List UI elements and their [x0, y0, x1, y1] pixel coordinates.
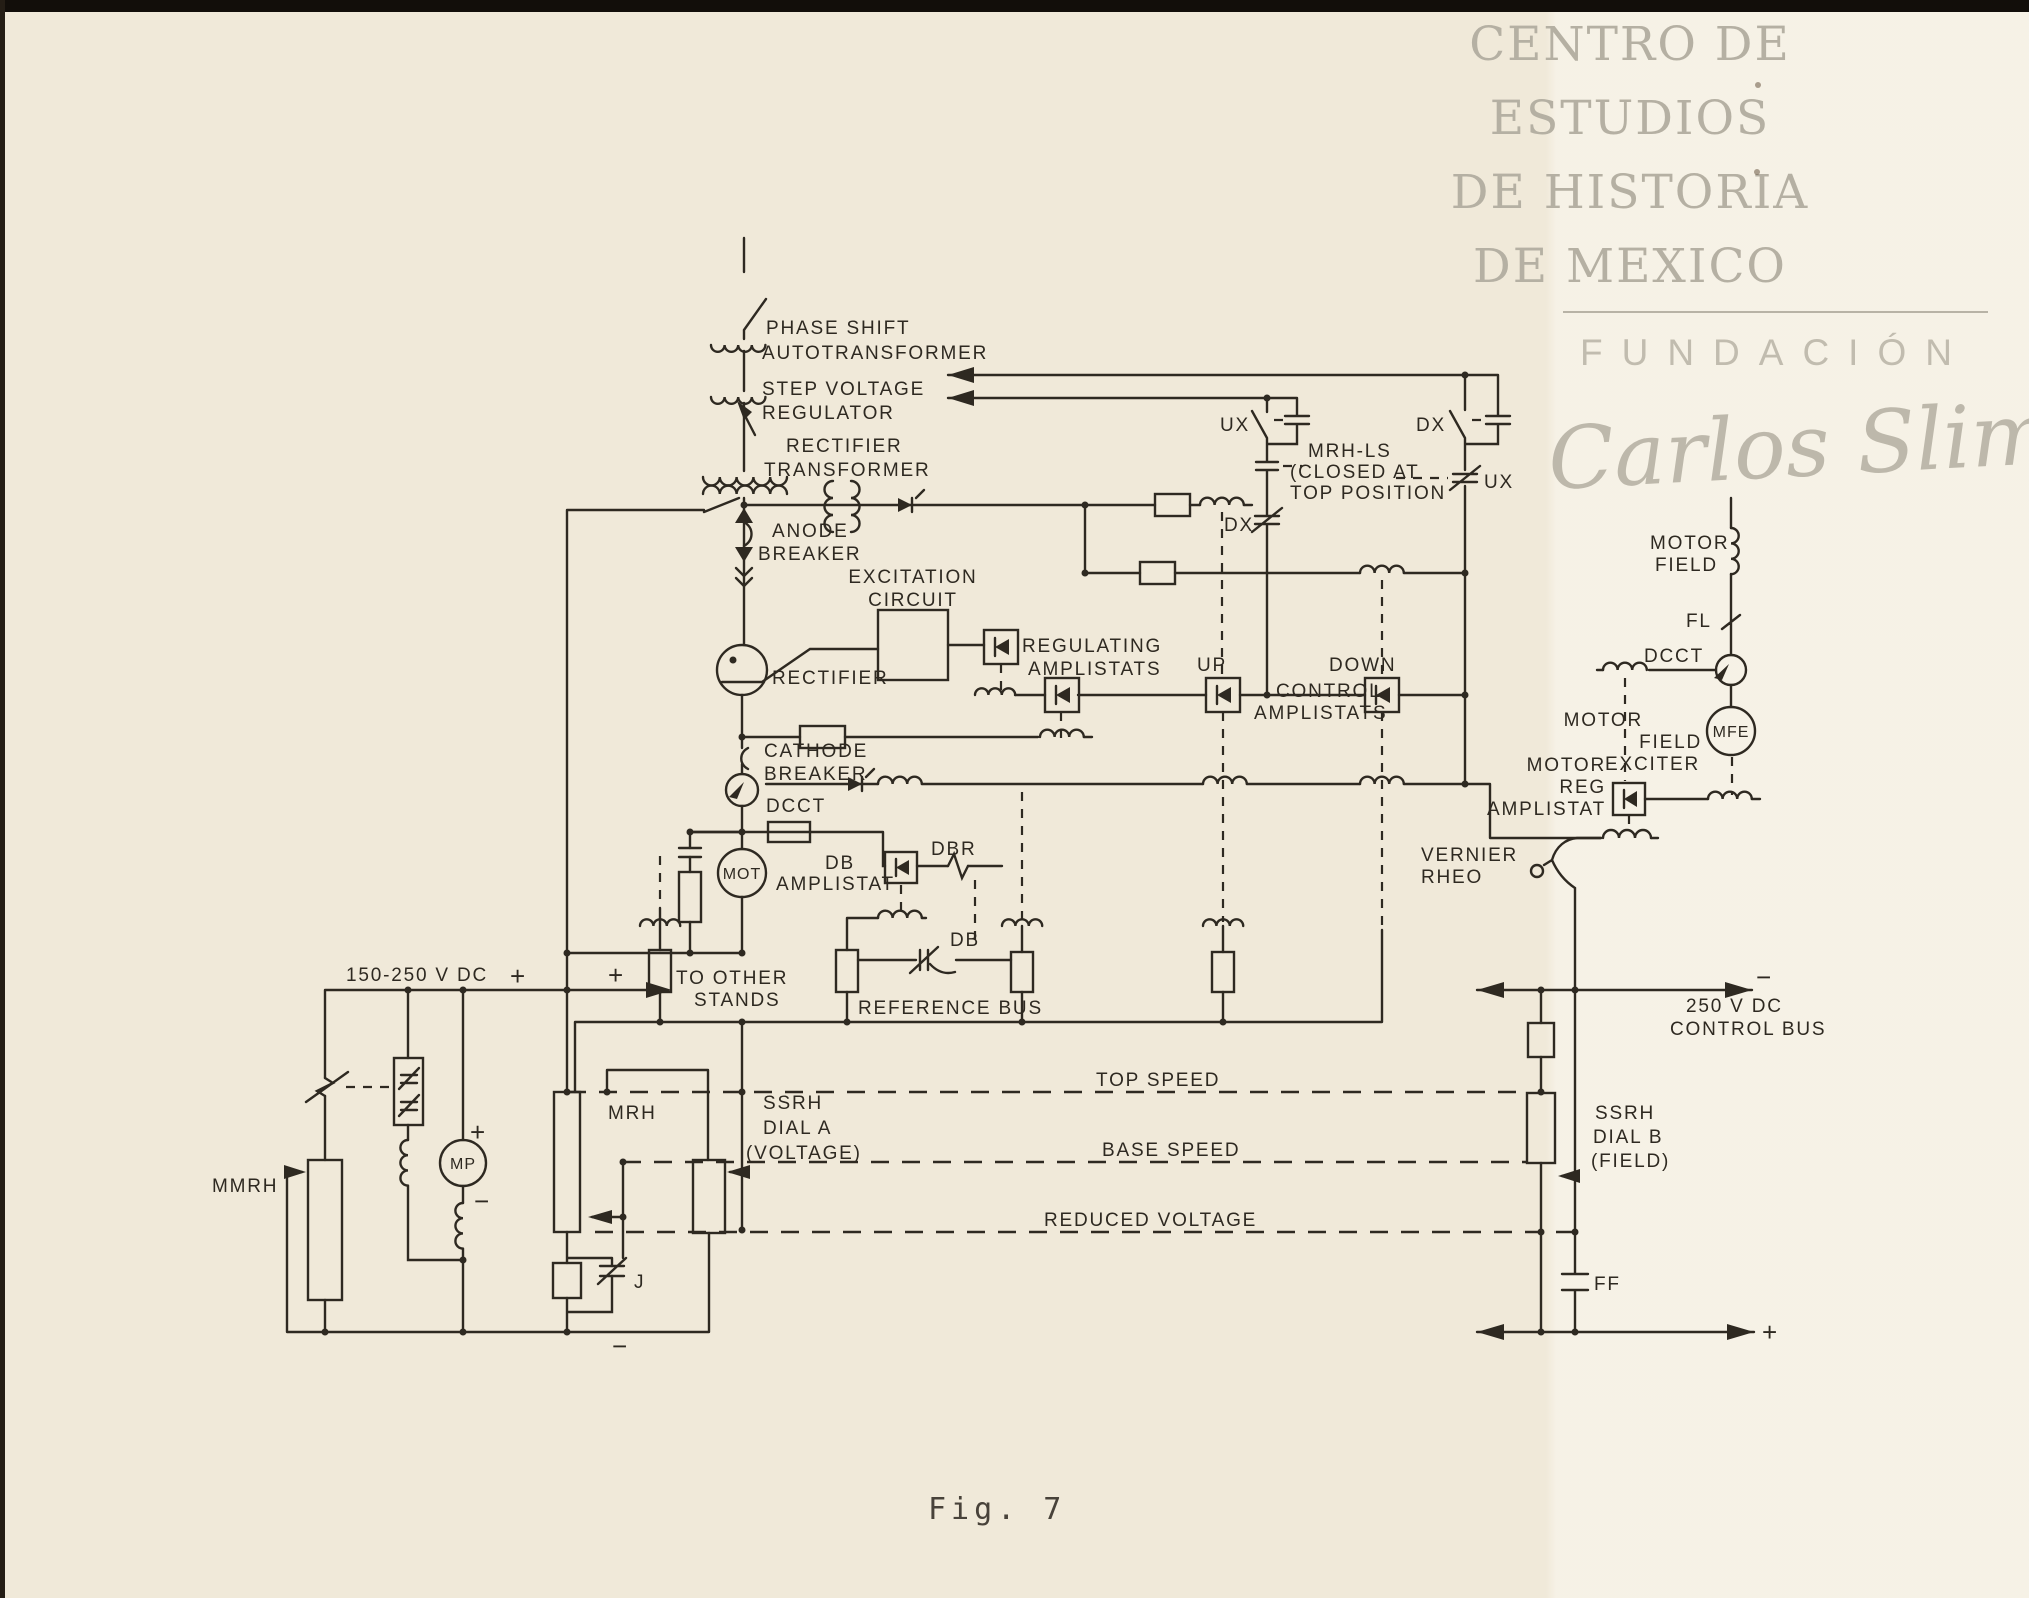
inductor-row505	[1200, 498, 1244, 505]
motor-field-exciter-label-2: FIELD	[1639, 732, 1702, 753]
dcct-left-label: DCCT	[766, 796, 826, 817]
control-bus-label-2: CONTROL BUS	[1670, 1019, 1826, 1040]
motor-field-coil	[1731, 528, 1739, 574]
bottom-plus: +	[1762, 1317, 1777, 1347]
vernier-rheo-terminal	[1531, 865, 1543, 877]
bottom-minus: −	[612, 1331, 627, 1361]
mfe-field-inductor	[1708, 792, 1752, 799]
resistor	[1212, 952, 1234, 992]
resistor	[1140, 562, 1175, 584]
circuit-diagram: PHASE SHIFT AUTOTRANSFORMER STEP VOLTAGE…	[0, 0, 2029, 1598]
rectifier-cathode-dot	[730, 657, 737, 664]
inductor-row784-b	[1203, 777, 1247, 784]
dx-left-label: DX	[1224, 515, 1254, 536]
junction-dot	[1082, 570, 1089, 577]
excitation-circuit-box	[878, 610, 948, 680]
arrowheads-and-diodes	[284, 367, 1754, 1340]
to-other-stands-label-2: STANDS	[694, 990, 780, 1011]
j-box	[553, 1263, 581, 1298]
dcct-right-inductor	[1603, 663, 1647, 670]
junction-dot	[564, 950, 571, 957]
down-label: DOWN	[1329, 655, 1396, 676]
motor-reg-amplistat-label-3: AMPLISTAT	[1487, 799, 1606, 820]
phase-shift-autotransformer-coil	[711, 345, 765, 352]
step-voltage-label-2: REGULATOR	[762, 403, 895, 424]
junction-dot	[564, 987, 571, 994]
inductor-row573	[1360, 566, 1404, 573]
contacts	[317, 848, 968, 1284]
motor-reg-amplistat-label-1: MOTOR	[1527, 755, 1606, 776]
excitation-label-1: EXCITATION	[848, 567, 977, 588]
junction-dot	[460, 1257, 467, 1264]
phase-shift-label-2: AUTOTRANSFORMER	[762, 343, 988, 364]
motor-field-label-2: FIELD	[1655, 555, 1718, 576]
junction-dot	[1462, 781, 1469, 788]
junction-dot	[739, 950, 746, 957]
junction-dot	[1572, 1329, 1579, 1336]
wire-layer	[287, 238, 1760, 1332]
up-amplistat	[1206, 678, 1240, 712]
junction-dot	[739, 829, 746, 836]
junction-dot	[460, 987, 467, 994]
inductor-row695	[975, 688, 1015, 695]
anode-breaker-label-1: ANODE	[772, 521, 849, 542]
resistor	[1011, 952, 1033, 992]
rectifier-transformer-secondary-coil	[703, 486, 787, 494]
regulating-amplistat-2	[1045, 678, 1079, 712]
dcct-right-circle	[1716, 655, 1746, 685]
db-amplistat-label-2: AMPLISTAT	[776, 874, 895, 895]
junction-dot	[844, 1019, 851, 1026]
junction-dot	[1538, 1329, 1545, 1336]
regulating-amplistats-label-2: AMPLISTATS	[1028, 659, 1161, 680]
motor-reg-amplistat-box	[1613, 783, 1645, 815]
junction-dot	[1082, 502, 1089, 509]
ssrh-a-label-2: DIAL A	[763, 1118, 832, 1139]
mmrh-resistor	[308, 1160, 342, 1300]
junction-dot	[687, 829, 694, 836]
mp-label: MP	[450, 1156, 476, 1173]
mp-series-coil	[455, 1203, 463, 1249]
scr-row505	[898, 490, 924, 512]
vernier-inductor	[1603, 830, 1651, 838]
control-bus-minus: −	[1756, 962, 1771, 992]
cathode-breaker-label-1: CATHODE	[764, 741, 868, 762]
dx-right-label: DX	[1416, 415, 1446, 436]
junction-dot	[657, 1019, 664, 1026]
ssrh-b-label-3: (FIELD)	[1591, 1151, 1670, 1172]
reduced-voltage-label: REDUCED VOLTAGE	[1044, 1210, 1257, 1231]
dust-speck	[1754, 169, 1760, 175]
junction-dot	[604, 1089, 611, 1096]
phase-shift-label-1: PHASE SHIFT	[766, 318, 910, 339]
junction-dot	[1572, 987, 1579, 994]
junction-dot	[1538, 1089, 1545, 1096]
ssrh-b-label-1: SSRH	[1595, 1103, 1655, 1124]
vernier-rheo-label-1: VERNIER	[1421, 845, 1518, 866]
diode-icon	[1056, 687, 1070, 703]
junction-dot	[1572, 1229, 1579, 1236]
rectifier-transformer-label-2: TRANSFORMER	[764, 460, 931, 481]
mmrh-label: MMRH	[212, 1176, 278, 1197]
junction-dot	[1462, 570, 1469, 577]
motor-field-exciter-label-1: MOTOR	[1564, 710, 1643, 731]
junction-dot	[1264, 395, 1271, 402]
under-mot-capacitor	[679, 848, 701, 857]
reference-bus-label: REFERENCE BUS	[858, 998, 1043, 1019]
resistor	[1155, 494, 1190, 516]
resistor	[679, 872, 701, 922]
ff-label: FF	[1594, 1274, 1621, 1295]
junction-dot	[1538, 987, 1545, 994]
junction-dot	[460, 1329, 467, 1336]
junction-dot	[739, 734, 746, 741]
junction-dot	[405, 987, 412, 994]
anode-breaker-label-2: BREAKER	[758, 544, 861, 565]
junction-dot	[620, 1214, 627, 1221]
up-label: UP	[1197, 655, 1227, 676]
regulating-amplistat-1	[984, 630, 1018, 664]
rectifier-label: RECTIFIER	[772, 668, 888, 689]
excitation-label-2: CIRCUIT	[868, 590, 958, 611]
field-loss-coil	[400, 1140, 408, 1186]
ssrh-a-label-1: SSRH	[763, 1093, 823, 1114]
inductor-row784-a	[878, 777, 922, 784]
motor-field-label-1: MOTOR	[1650, 533, 1729, 554]
junction-dot	[1538, 1229, 1545, 1236]
vernier-rheo-label-2: RHEO	[1421, 867, 1483, 888]
mot-label: MOT	[723, 866, 762, 883]
scr-gate	[916, 490, 924, 498]
junction-dot	[1019, 1019, 1026, 1026]
to-other-stands-label-1: TO OTHER	[676, 968, 788, 989]
dcct-right-label: DCCT	[1644, 646, 1704, 667]
junction-dot	[687, 950, 694, 957]
mrh-ls-label-3: TOP POSITION	[1290, 483, 1446, 504]
control-dashed-verticals	[346, 420, 1732, 1087]
ssrh-dial-a-resistor	[693, 1160, 725, 1233]
figure-caption: Fig. 7	[928, 1492, 1066, 1527]
mrh-ls-label-2: (CLOSED AT	[1290, 462, 1420, 483]
mrh-label: MRH	[608, 1103, 657, 1124]
scan-dust	[1754, 82, 1761, 175]
junction-dot	[741, 502, 748, 509]
field-loss-contact-icons	[399, 1068, 419, 1116]
step-voltage-label-1: STEP VOLTAGE	[762, 379, 925, 400]
cathode-breaker-label-2: BREAKER	[764, 764, 867, 785]
control-bus-label-1: 250 V DC	[1686, 996, 1783, 1017]
motor-field-exciter-label-3: EXCITER	[1605, 754, 1700, 775]
db-contact-label: DB	[950, 930, 980, 951]
top-speed-label: TOP SPEED	[1096, 1070, 1220, 1091]
dcct-left-arrow-icon	[729, 782, 744, 799]
junction-dot	[564, 1329, 571, 1336]
junction-dot	[564, 1089, 571, 1096]
junction-dot	[1264, 692, 1271, 699]
dbr-label: DBR	[931, 839, 977, 860]
junction-dot	[1220, 1019, 1227, 1026]
ssrh-dial-b-upper-resistor	[1528, 1023, 1554, 1057]
dc-bus-label: 150-250 V DC	[346, 965, 488, 986]
db-amplistat-label-1: DB	[825, 853, 855, 874]
ssrh-b-label-2: DIAL B	[1593, 1127, 1663, 1148]
fl-label: FL	[1686, 611, 1712, 632]
junction-dot	[322, 1329, 329, 1336]
rectifier-circle	[717, 645, 767, 695]
resistors-and-boxes	[308, 494, 1555, 1300]
diode-icon	[1624, 791, 1637, 807]
junction-dot	[1462, 692, 1469, 699]
base-speed-label: BASE SPEED	[1102, 1140, 1240, 1161]
j-label: J	[634, 1272, 645, 1293]
mp-minus: −	[474, 1186, 489, 1216]
junction-dot	[739, 1089, 746, 1096]
ux-right-label: UX	[1484, 472, 1514, 493]
mp-plus: +	[470, 1117, 485, 1147]
dust-speck	[1755, 82, 1761, 88]
diode-icon	[995, 639, 1009, 655]
rectifier-transformer-label-1: RECTIFIER	[786, 436, 902, 457]
inductor-row918	[878, 911, 922, 918]
ssrh-dial-b-resistor	[1527, 1093, 1555, 1163]
scr-triangle	[898, 498, 912, 512]
junction-dot	[739, 1019, 746, 1026]
junction-dot	[620, 1159, 627, 1166]
junction-dot	[1462, 372, 1469, 379]
right-side-wires	[948, 375, 1760, 1332]
regulating-amplistats-label-1: REGULATING	[1022, 636, 1162, 657]
control-amplistats-label-1: CONTROL	[1276, 681, 1382, 702]
control-amplistats-label-2: AMPLISTATS	[1254, 703, 1387, 724]
dcct-left-circle	[726, 774, 758, 806]
junction-dot	[739, 1227, 746, 1234]
ux-left-label: UX	[1220, 415, 1250, 436]
mmrh-break-symbol	[317, 1078, 333, 1096]
aux-transformer-right-winding	[851, 481, 860, 532]
motor-reg-amplistat-label-2: REG	[1559, 777, 1606, 798]
diode-icon	[1217, 687, 1231, 703]
mrh-ls-label-1: MRH-LS	[1308, 441, 1392, 462]
inductor-and-transformer-coils	[400, 345, 1751, 1249]
ssrh-a-label-3: (VOLTAGE)	[746, 1143, 862, 1164]
mrh-resistor	[554, 1092, 580, 1232]
stands-plus: +	[608, 960, 623, 990]
diagram-labels: PHASE SHIFT AUTOTRANSFORMER STEP VOLTAGE…	[212, 318, 1826, 1361]
dc-bus-plus: +	[510, 961, 525, 991]
diode-icon	[896, 860, 909, 875]
resistor	[836, 950, 858, 992]
mfe-label: MFE	[1713, 724, 1750, 741]
arrowheads	[284, 367, 1754, 1340]
